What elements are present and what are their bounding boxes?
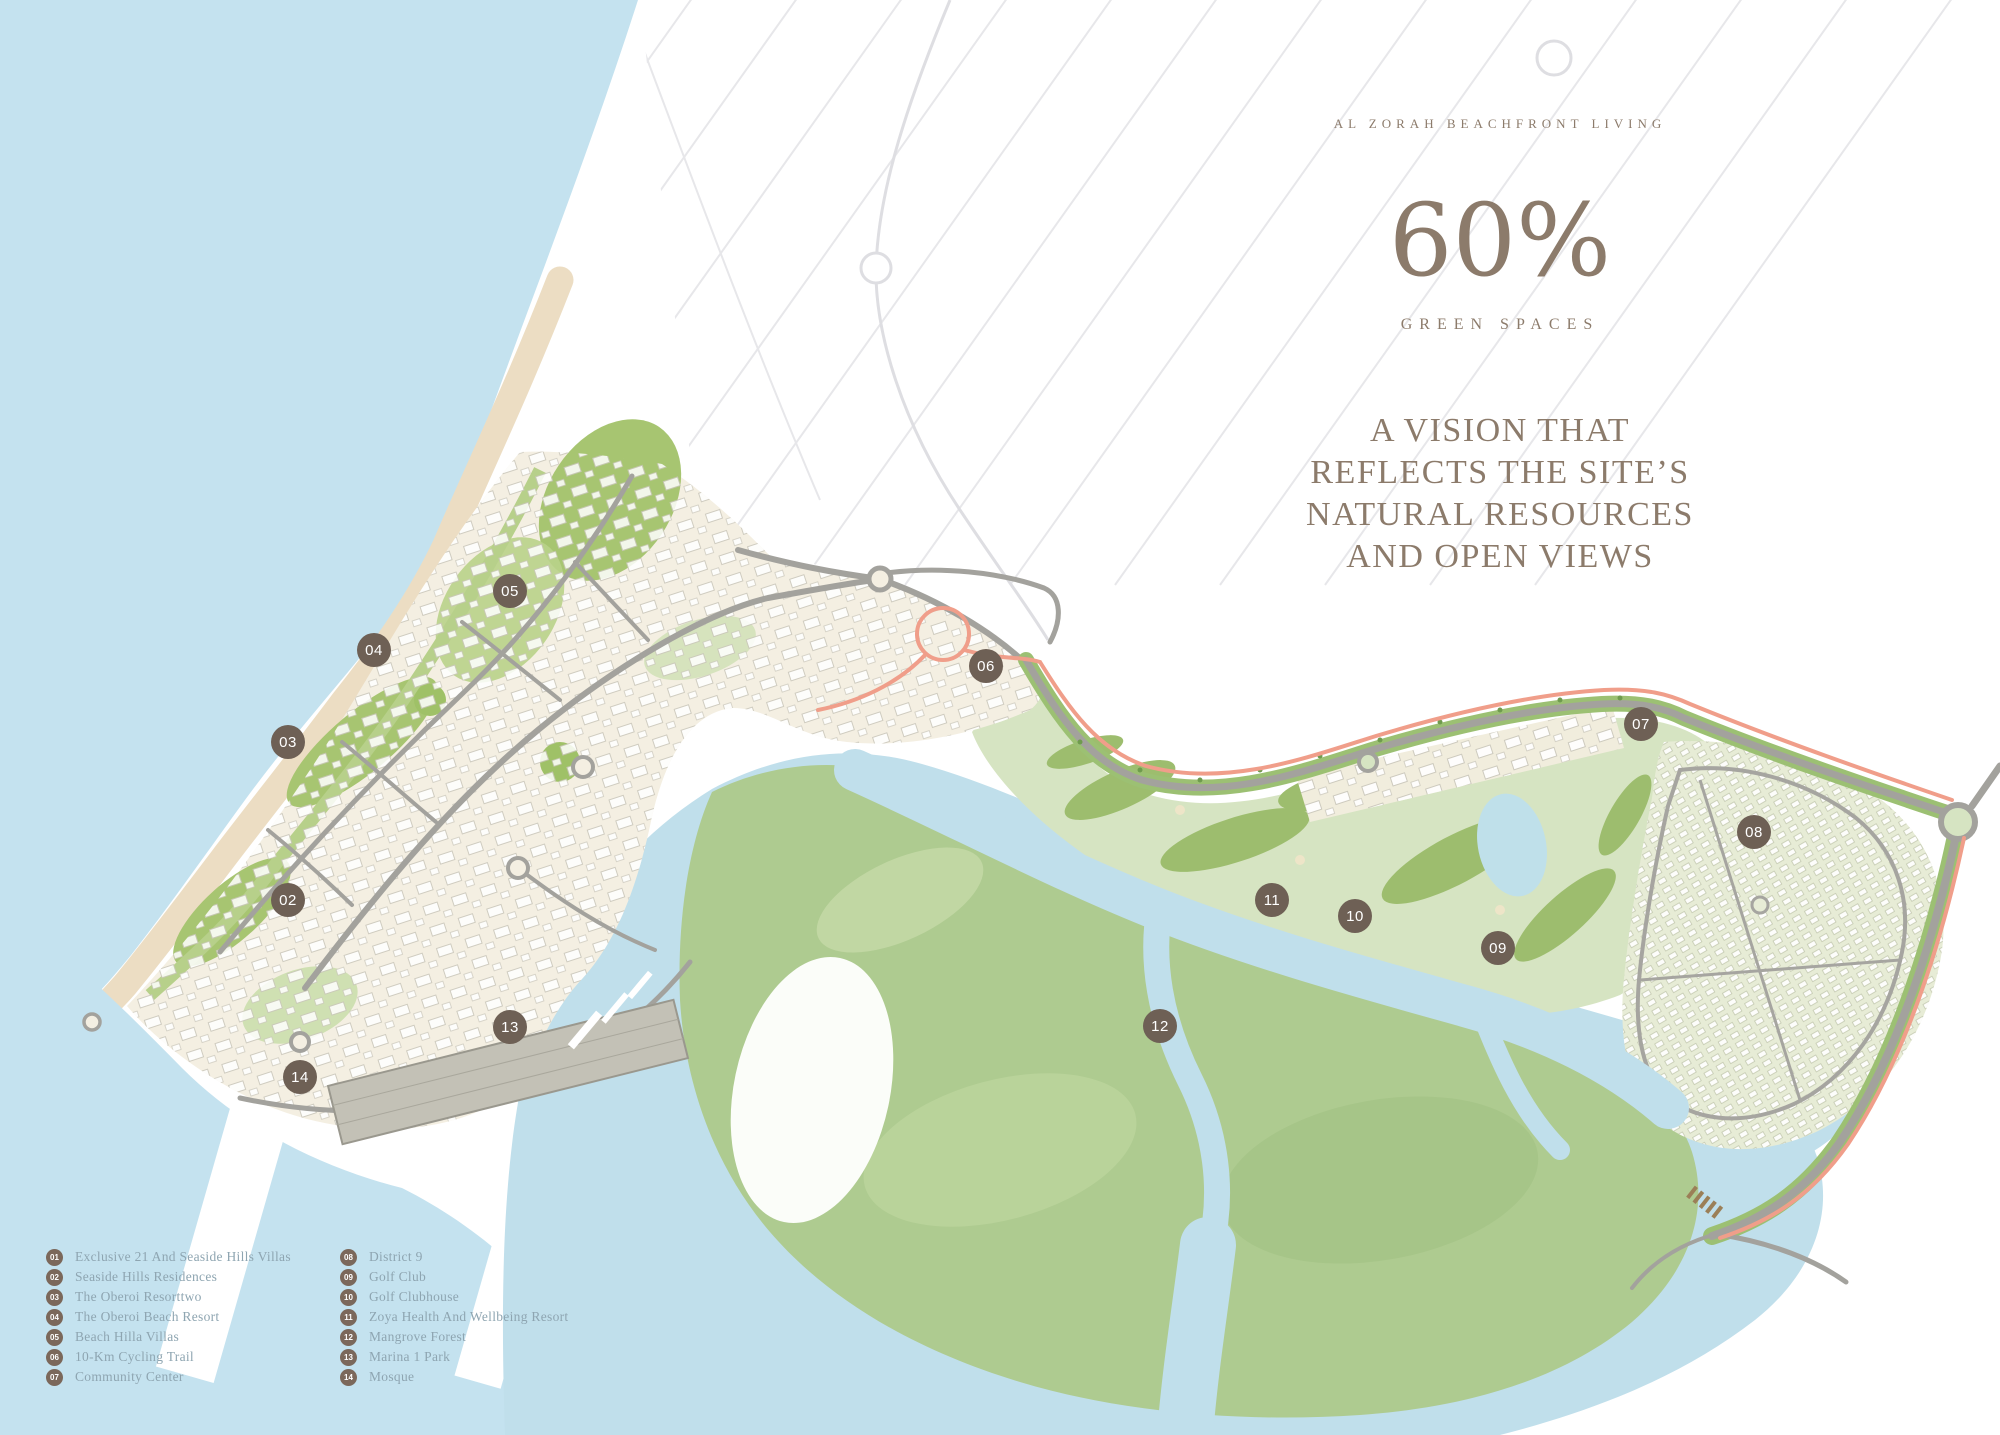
map-marker-10: 10 xyxy=(1338,899,1372,933)
future-roundabout-icon xyxy=(861,253,891,283)
legend-item-14: 14Mosque xyxy=(340,1367,670,1387)
map-marker-02: 02 xyxy=(271,883,305,917)
legend-number-badge: 04 xyxy=(46,1309,63,1326)
legend-item-10: 10Golf Clubhouse xyxy=(340,1287,670,1307)
legend-column-2: 08District 909Golf Club10Golf Clubhouse1… xyxy=(340,1247,670,1387)
legend-item-13: 13Marina 1 Park xyxy=(340,1347,670,1367)
legend-number-badge: 08 xyxy=(340,1249,357,1266)
map-marker-09: 09 xyxy=(1481,931,1515,965)
legend-number-badge: 01 xyxy=(46,1249,63,1266)
map-marker-03: 03 xyxy=(271,725,305,759)
legend-item-07: 07Community Center xyxy=(46,1367,336,1387)
legend-number-badge: 03 xyxy=(46,1289,63,1306)
future-roundabout-icon xyxy=(1537,41,1571,75)
legend-label: Mosque xyxy=(369,1369,414,1385)
legend-number-badge: 13 xyxy=(340,1349,357,1366)
masterplan-page: 02030405060708091011121314 AL ZORAH BEAC… xyxy=(0,0,2000,1435)
legend-column-1: 01Exclusive 21 And Seaside Hills Villas0… xyxy=(46,1247,336,1387)
map-marker-12: 12 xyxy=(1143,1009,1177,1043)
legend-label: Exclusive 21 And Seaside Hills Villas xyxy=(75,1249,291,1265)
legend-item-11: 11Zoya Health And Wellbeing Resort xyxy=(340,1307,670,1327)
legend-label: Community Center xyxy=(75,1369,184,1385)
legend-label: Golf Club xyxy=(369,1269,426,1285)
legend-item-08: 08District 9 xyxy=(340,1247,670,1267)
map-marker-14: 14 xyxy=(283,1060,317,1094)
legend-label: District 9 xyxy=(369,1249,423,1265)
map-marker-06: 06 xyxy=(969,649,1003,683)
legend-label: Mangrove Forest xyxy=(369,1329,466,1345)
legend-label: Zoya Health And Wellbeing Resort xyxy=(369,1309,568,1325)
vision-headline-line: NATURAL RESOURCES xyxy=(1240,494,1760,536)
map-marker-13: 13 xyxy=(493,1010,527,1044)
east-roundabout xyxy=(1941,805,1975,839)
map-marker-11: 11 xyxy=(1255,883,1289,917)
map-marker-05: 05 xyxy=(493,574,527,608)
legend-label: Marina 1 Park xyxy=(369,1349,450,1365)
legend-label: The Oberoi Resorttwo xyxy=(75,1289,202,1305)
legend-number-badge: 05 xyxy=(46,1329,63,1346)
map-marker-04: 04 xyxy=(357,633,391,667)
vision-headline: A VISION THAT REFLECTS THE SITE’S NATURA… xyxy=(1240,410,1760,578)
map-marker-08: 08 xyxy=(1737,815,1771,849)
vision-headline-line: AND OPEN VIEWS xyxy=(1240,536,1760,578)
legend-item-03: 03The Oberoi Resorttwo xyxy=(46,1287,336,1307)
legend-item-04: 04The Oberoi Beach Resort xyxy=(46,1307,336,1327)
legend-number-badge: 12 xyxy=(340,1329,357,1346)
vision-headline-line: REFLECTS THE SITE’S xyxy=(1240,452,1760,494)
legend-number-badge: 14 xyxy=(340,1369,357,1386)
legend-number-badge: 09 xyxy=(340,1269,357,1286)
legend-number-badge: 07 xyxy=(46,1369,63,1386)
boulevard-roundabout xyxy=(1359,753,1377,771)
legend-label: Seaside Hills Residences xyxy=(75,1269,217,1285)
legend-item-02: 02Seaside Hills Residences xyxy=(46,1267,336,1287)
legend-number-badge: 11 xyxy=(340,1309,357,1326)
legend-label: Golf Clubhouse xyxy=(369,1289,459,1305)
map-marker-07: 07 xyxy=(1624,707,1658,741)
green-space-stat-label: GREEN SPACES xyxy=(1240,316,1760,334)
legend-item-09: 09Golf Club xyxy=(340,1267,670,1287)
legend-label: 10-Km Cycling Trail xyxy=(75,1349,194,1365)
legend-label: The Oberoi Beach Resort xyxy=(75,1309,219,1325)
vision-headline-line: A VISION THAT xyxy=(1240,410,1760,452)
legend-number-badge: 06 xyxy=(46,1349,63,1366)
legend-item-06: 0610-Km Cycling Trail xyxy=(46,1347,336,1367)
legend-number-badge: 02 xyxy=(46,1269,63,1286)
brand-eyebrow: AL ZORAH BEACHFRONT LIVING xyxy=(1240,116,1760,132)
legend-number-badge: 10 xyxy=(340,1289,357,1306)
green-space-stat: 60% xyxy=(1240,188,1760,293)
legend-item-01: 01Exclusive 21 And Seaside Hills Villas xyxy=(46,1247,336,1267)
legend-item-12: 12Mangrove Forest xyxy=(340,1327,670,1347)
legend-label: Beach Hilla Villas xyxy=(75,1329,179,1345)
legend-item-05: 05Beach Hilla Villas xyxy=(46,1327,336,1347)
